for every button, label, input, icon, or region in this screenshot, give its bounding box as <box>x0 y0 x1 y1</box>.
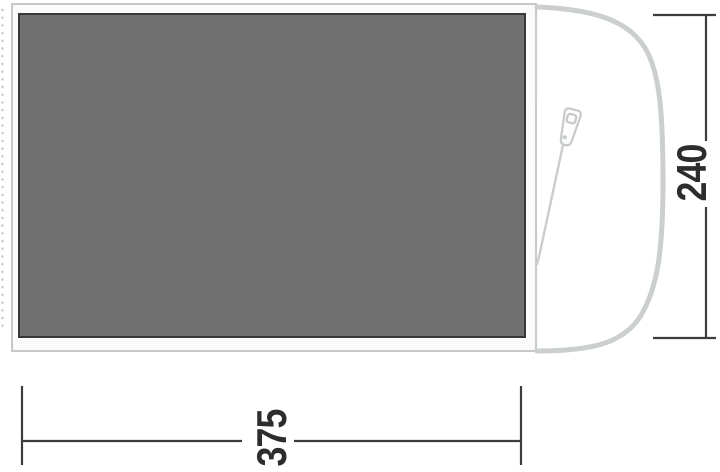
height-dimension-label: 240 <box>669 122 715 224</box>
tent-floorplan-diagram: 240 375 <box>0 0 720 472</box>
zipper-cord <box>537 145 563 264</box>
width-dimension-label: 375 <box>249 387 295 472</box>
diagram-graphics <box>0 0 720 472</box>
zipper-pull-icon <box>557 108 582 147</box>
